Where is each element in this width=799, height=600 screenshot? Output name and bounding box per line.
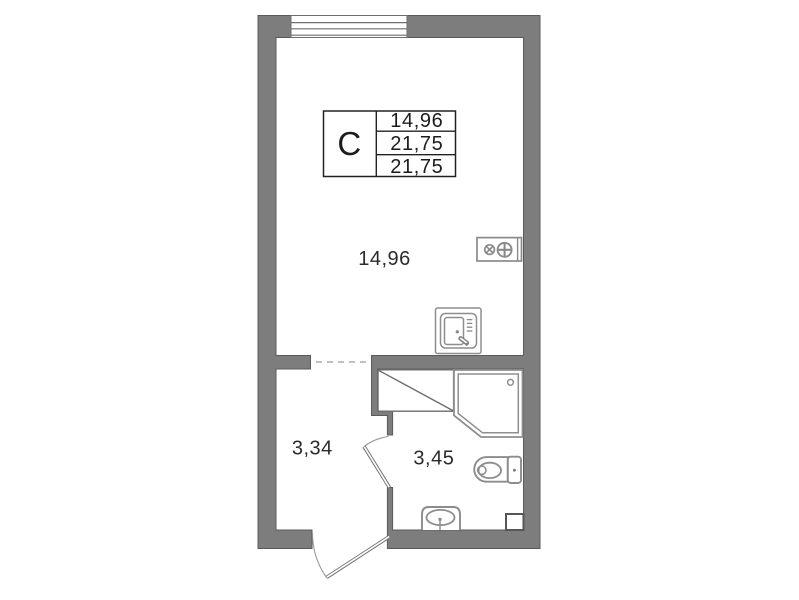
svg-text:21,75: 21,75 — [390, 156, 443, 178]
svg-text:C: C — [337, 125, 361, 162]
svg-text:14,96: 14,96 — [358, 248, 411, 270]
svg-text:14,96: 14,96 — [390, 110, 443, 132]
svg-text:21,75: 21,75 — [390, 133, 443, 155]
svg-text:3,45: 3,45 — [413, 448, 454, 470]
svg-text:3,34: 3,34 — [292, 438, 333, 460]
